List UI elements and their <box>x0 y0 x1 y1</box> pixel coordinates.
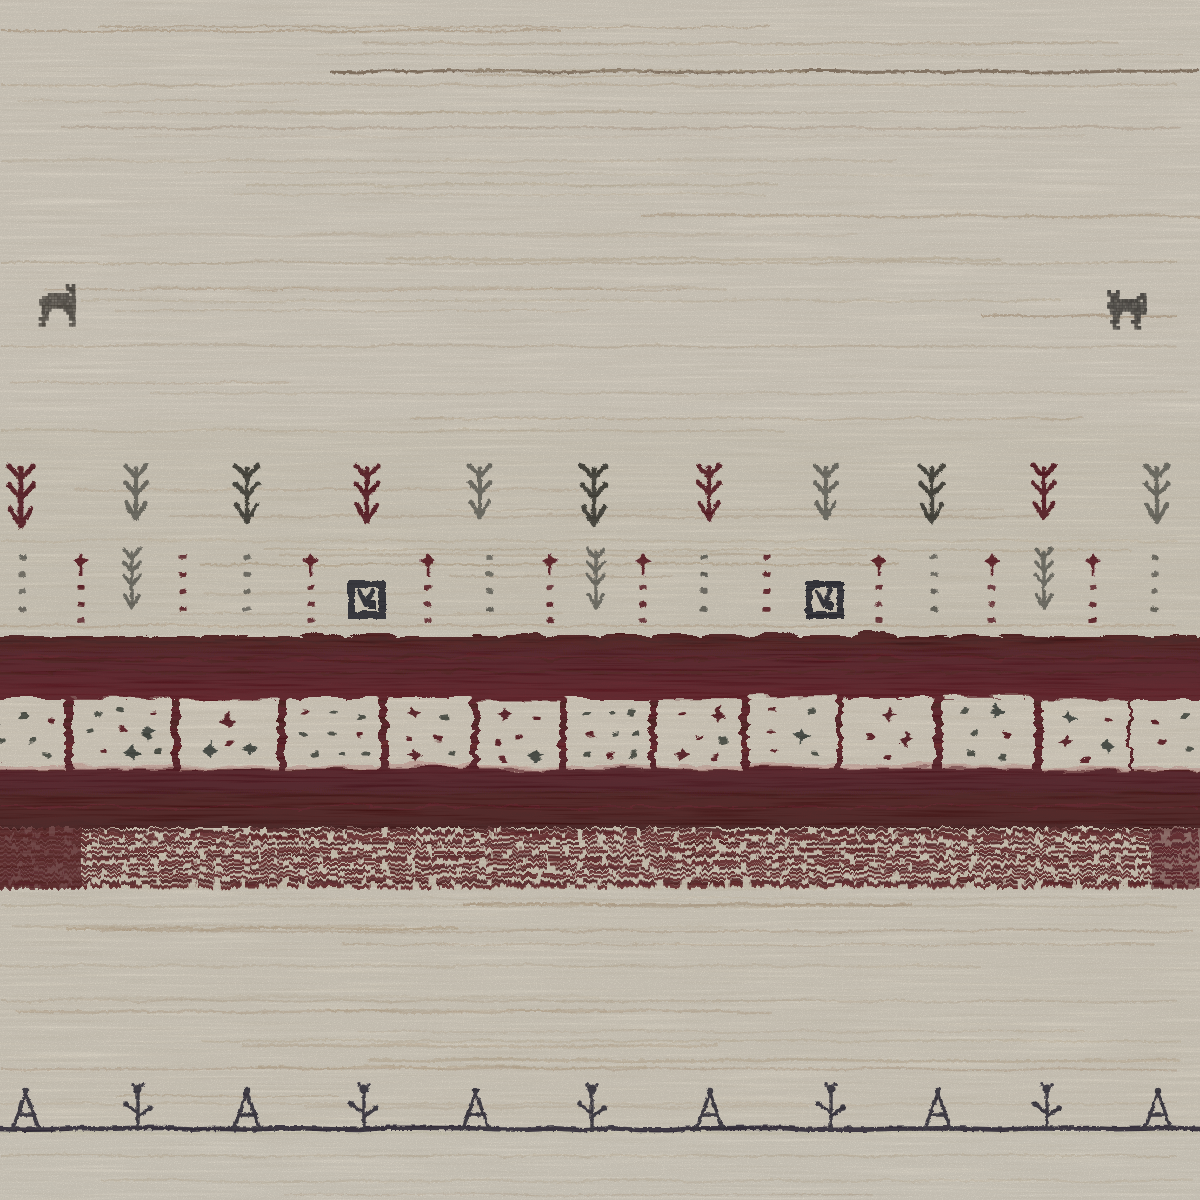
wool-texture-overlay <box>0 0 1200 1200</box>
rug-photo <box>0 0 1200 1200</box>
rug-canvas <box>0 0 1200 1200</box>
highlight-overlay <box>0 0 1200 1200</box>
